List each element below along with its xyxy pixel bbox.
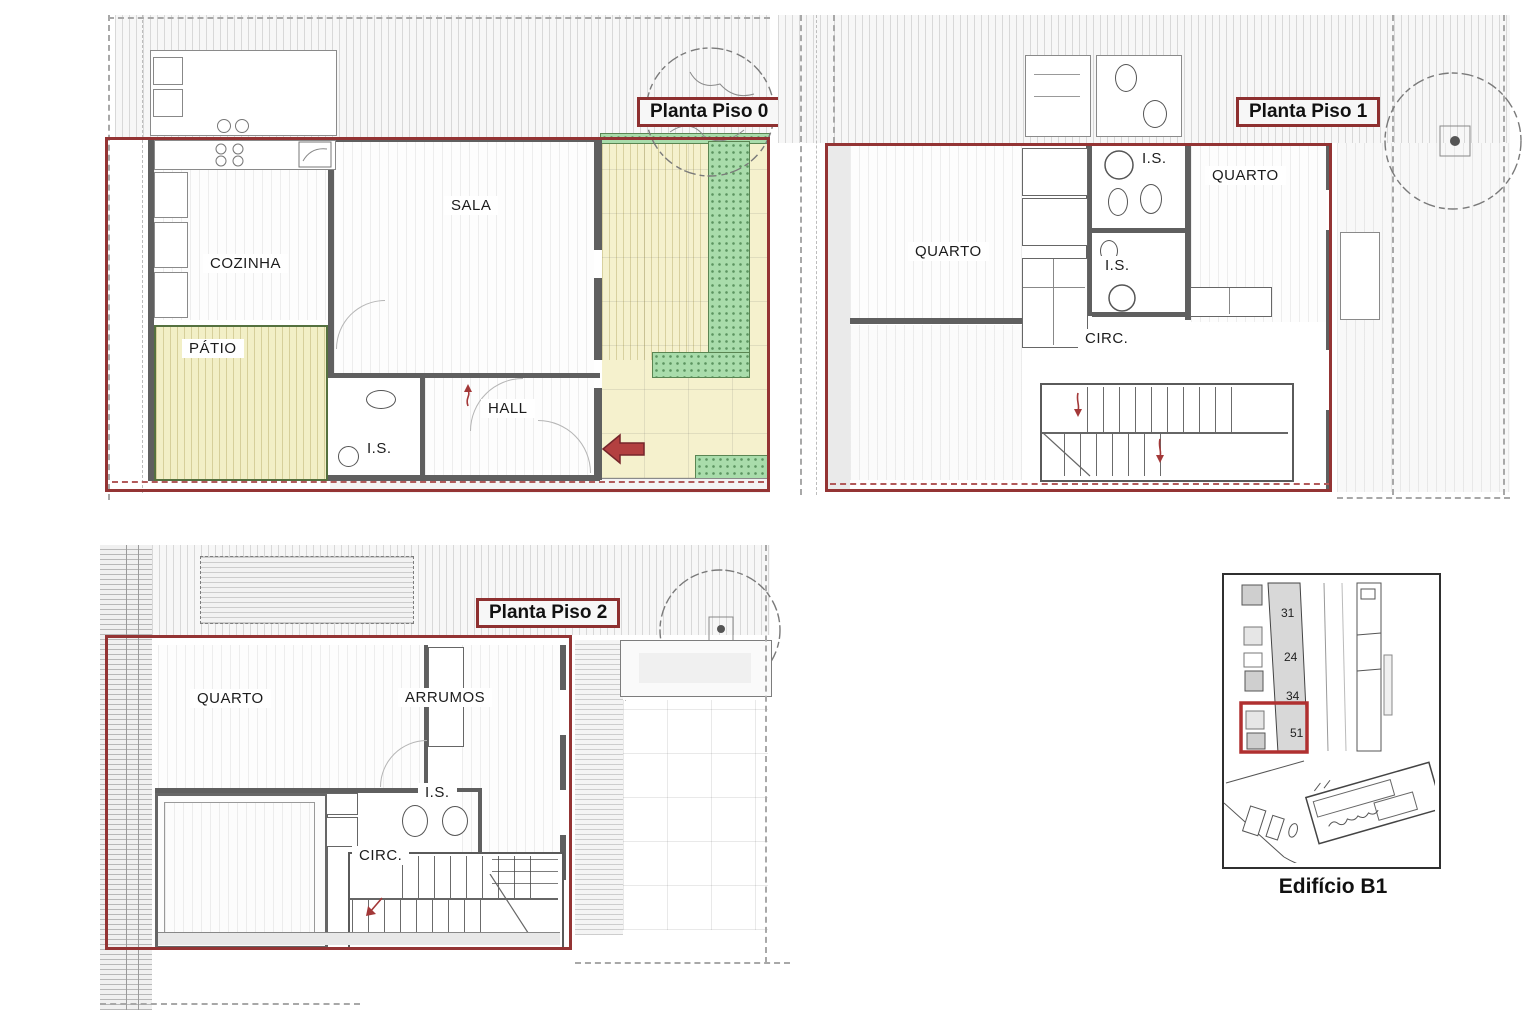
unit-number: 24	[1284, 650, 1298, 664]
unit-number: 31	[1281, 606, 1295, 620]
piso2-red-boundary	[105, 635, 572, 950]
piso0-red-boundary	[105, 137, 770, 492]
room-label-is-mid: I.S.	[1098, 256, 1137, 275]
piso0-title: Planta Piso 0	[637, 97, 781, 127]
door-arc	[625, 700, 626, 701]
appliance-icon	[153, 57, 183, 85]
neighbor-bathroom	[1096, 55, 1182, 137]
room-label-hall: HALL	[481, 399, 535, 418]
key-plan-drawing: 31 24 34 51	[1224, 575, 1435, 863]
piso0-neighbor-kitchen	[150, 50, 337, 136]
room-label-sala: SALA	[444, 196, 498, 215]
piso0-top-dashed-line	[108, 17, 770, 19]
appliance-icon	[153, 89, 183, 117]
drawing-sheet: SALA COZINHA PÁTIO HALL I.S. Planta Piso…	[0, 0, 1536, 1024]
room-label-patio: PÁTIO	[182, 339, 244, 358]
lot-dashed-line	[816, 15, 817, 495]
unit-number: 51	[1290, 726, 1304, 740]
key-plan-frame: 31 24 34 51	[1222, 573, 1441, 869]
lot-dashed-line	[833, 15, 835, 143]
room-label-quarto-right: QUARTO	[1205, 166, 1286, 185]
piso1-title: Planta Piso 1	[1236, 97, 1380, 127]
room-label-is-top: I.S.	[1135, 149, 1174, 168]
burner-icon	[235, 119, 249, 133]
shelf-line	[1034, 96, 1080, 97]
room-label-is0: I.S.	[360, 439, 399, 458]
room-label-is2: I.S.	[418, 783, 457, 802]
piso1-red-boundary	[825, 143, 1332, 492]
room-label-cozinha: COZINHA	[203, 254, 288, 273]
lot-dashed-line	[1337, 497, 1510, 499]
room-label-quarto-left: QUARTO	[908, 242, 989, 261]
room-label-quarto2: QUARTO	[190, 689, 271, 708]
shelf-line	[1034, 74, 1080, 75]
room-label-circ2: CIRC.	[352, 846, 409, 865]
toilet-icon	[1143, 100, 1167, 128]
lot-dashed-line	[100, 1003, 360, 1005]
piso2-context-tiles	[623, 700, 768, 930]
piso2-context-block	[620, 640, 772, 697]
toilet-icon	[1115, 64, 1137, 92]
room-label-arrumos: ARRUMOS	[398, 688, 492, 707]
lot-dashed-line	[800, 15, 802, 495]
key-plan-caption: Edifício B1	[1268, 875, 1398, 899]
piso2-title: Planta Piso 2	[476, 598, 620, 628]
lot-dashed-line	[765, 545, 767, 963]
context-block-stripes	[639, 653, 751, 683]
piso2-roof-block	[200, 556, 414, 624]
tree-icon	[1380, 68, 1526, 214]
burner-icon	[217, 119, 231, 133]
room-label-circ1: CIRC.	[1078, 329, 1135, 348]
lot-dashed-line	[575, 962, 790, 964]
neighbor-window-block	[1340, 232, 1380, 320]
piso2-context-roof-right	[575, 640, 623, 935]
neighbor-closet	[1025, 55, 1091, 137]
unit-number: 34	[1286, 689, 1300, 703]
